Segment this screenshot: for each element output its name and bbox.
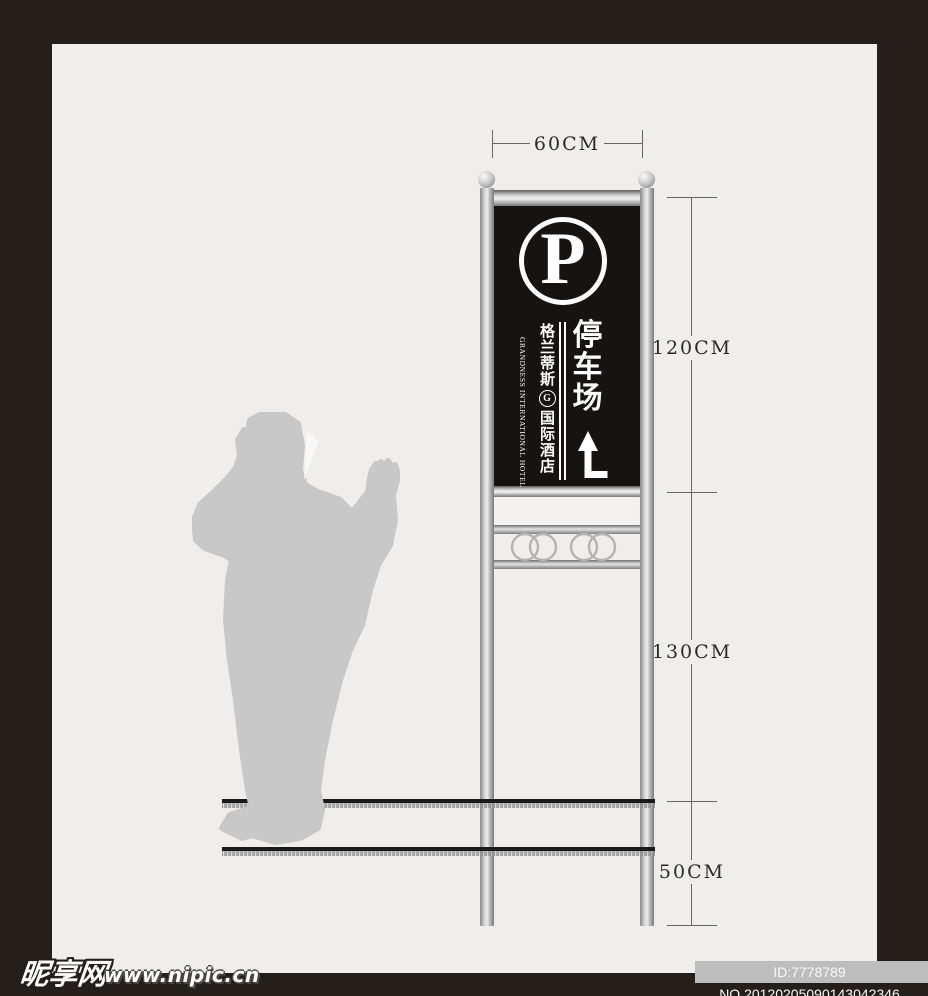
height-dim-line: [691, 198, 692, 926]
width-dim-label-text: 60CM: [530, 132, 604, 156]
hotel-name-column: 格兰蒂斯 G 国际酒店: [538, 323, 556, 474]
watermark-site-url: www.nipic.cn: [104, 963, 260, 987]
hotel-name-upper: 格兰蒂斯: [538, 323, 556, 387]
watermark-image-id: ID:7778789 NO.20120205090143042346: [695, 961, 928, 983]
ornament-rings-icon: [506, 531, 618, 563]
height-dim-tick-4: [667, 925, 717, 926]
phone-highlight: [304, 431, 319, 480]
sign-bottom-rail: [492, 486, 641, 497]
width-dim-label: 60CM: [492, 132, 642, 156]
height-dim-tick-2: [667, 492, 717, 493]
watermark-site-logo: 昵享网: [18, 951, 109, 993]
sign-top-rail: [492, 190, 641, 206]
main-text-vertical: 停 车 场: [571, 320, 604, 415]
design-sheet: 60CM 120CM 130CM 50CM P 停 车 场 格兰蒂斯 G: [0, 0, 928, 996]
hotel-name-lower: 国际酒店: [538, 410, 556, 474]
height-dim-tick-3: [667, 801, 717, 802]
sign-sub-panel: [494, 497, 639, 525]
main-char-3: 场: [571, 383, 604, 415]
width-dim-tick-right: [642, 130, 643, 158]
height-dim-label-50: 50CM: [642, 860, 742, 884]
pole-left: [480, 188, 494, 926]
ground-stipple-lower: [222, 851, 655, 856]
hotel-logo-letter: G: [543, 394, 551, 404]
pole-right: [640, 188, 654, 926]
pole-cap-right: [638, 171, 655, 188]
parking-symbol: P: [540, 222, 585, 296]
drawing-canvas: [52, 44, 877, 973]
person-silhouette: [192, 412, 402, 847]
main-char-2: 车: [571, 352, 604, 384]
direction-arrow-icon: [576, 431, 610, 478]
height-dim-label-130: 130CM: [642, 640, 742, 664]
pole-cap-left: [478, 171, 495, 188]
parking-circle-icon: P: [519, 217, 607, 305]
hotel-name-en: GRANDNESS INTERNATIONAL HOTEL: [516, 337, 527, 471]
main-char-1: 停: [571, 320, 604, 352]
double-line-divider: [559, 322, 566, 480]
height-dim-label-120: 120CM: [642, 336, 742, 360]
hotel-logo-icon: G: [539, 390, 556, 407]
height-dim-tick-1: [667, 197, 717, 198]
